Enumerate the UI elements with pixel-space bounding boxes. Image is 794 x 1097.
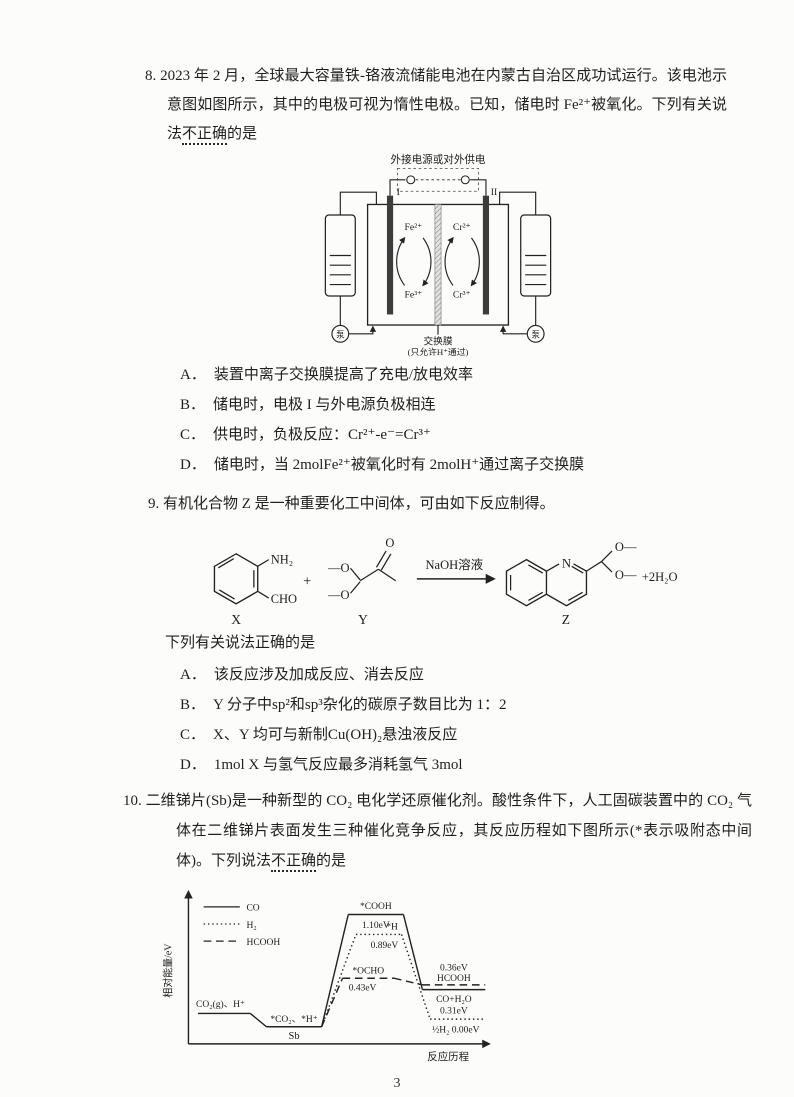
reaction-arrow: NaOH溶液: [417, 557, 494, 579]
question-10: 10. 二维锑片(Sb)是一种新型的 CO₂ 电化学还原催化剂。酸性条件下，人工…: [0, 786, 794, 1066]
cooh-intermediate-label: *COOH: [360, 902, 392, 912]
q10-stem-emphasis: 不正确: [271, 853, 316, 872]
z-nitrogen-label: N: [562, 556, 571, 570]
external-power-label: 外接电源或对外供电: [391, 153, 486, 166]
q8-options: A．装置中离子交换膜提高了充电/放电效率 B．储电时，电极 I 与外电源负极相连…: [180, 360, 794, 480]
electrode-right-label: II: [491, 187, 497, 198]
circuit-wires: [390, 168, 486, 195]
left-pump: 泵: [332, 296, 373, 342]
q9-option-c-text: X、Y 均可与新制Cu(OH)₂悬浊液反应: [213, 727, 457, 743]
molecule-x: NH₂ CHO X: [214, 552, 297, 627]
ocho-energy-label: 0.43eV: [349, 984, 377, 994]
h-intermediate-label: *H: [386, 923, 398, 933]
q10-stem-tail: 的是: [316, 853, 346, 869]
terminal-left: [407, 176, 415, 184]
y-methoxy-top: —O: [327, 561, 350, 575]
left-tank: [325, 192, 376, 296]
h2-product-label: ½H₂ 0.00eV: [432, 1024, 480, 1035]
plus-sign: +: [303, 574, 311, 590]
energy-profile-svg: 相对能量/eV 反应历程 CO H₂ HCOOH CO₂(g)、H⁺ *: [158, 880, 510, 1066]
common-path: CO₂(g)、H⁺ *CO₂、*H⁺ Sb: [196, 999, 322, 1042]
q8-option-b: B．储电时，电极 I 与外电源负极相连: [180, 390, 794, 420]
page-number: 3: [0, 1076, 794, 1092]
pump-right-label: 泵: [532, 330, 540, 339]
question-9-stem: 9. 有机化合物 Z 是一种重要化工中间体，可由如下反应制得。: [148, 490, 794, 519]
x-amine-label: NH₂: [271, 552, 293, 566]
q8-stem-emphasis: 不正确: [182, 126, 227, 145]
q9-option-c: C．X、Y 均可与新制Cu(OH)₂悬浊液反应: [180, 720, 794, 750]
q8-option-b-text: 储电时，电极 I 与外电源负极相连: [213, 397, 436, 413]
y-methoxy-bottom: —O: [327, 588, 350, 602]
start-state-label: CO₂(g)、H⁺: [196, 999, 245, 1010]
label-z: Z: [562, 612, 570, 627]
q8-option-c-label: C．: [180, 427, 205, 443]
q8-option-c: C．供电时，负极反应：Cr²⁺-e⁻=Cr³⁺: [180, 420, 794, 450]
reaction-scheme: NH₂ CHO X + —O —O O Y: [188, 521, 794, 629]
q9-option-d-label: D．: [180, 757, 206, 773]
q8-option-a-text: 装置中离子交换膜提高了充电/放电效率: [214, 367, 473, 383]
h-energy-label: 0.89eV: [371, 941, 399, 951]
right-compartment-ions: Cr²⁺ Cr³⁺: [445, 222, 479, 301]
question-10-stem: 10. 二维锑片(Sb)是一种新型的 CO₂ 电化学还原催化剂。酸性条件下，人工…: [123, 786, 752, 876]
q9-option-c-label: C．: [180, 727, 205, 743]
molecule-y: —O —O O Y: [327, 536, 396, 627]
q9-option-a-text: 该反应涉及加成反应、消去反应: [214, 667, 424, 683]
x-aldehyde-label: CHO: [271, 592, 297, 606]
cr3-ion-label: Cr³⁺: [453, 290, 471, 301]
hcooh-product-label: HCOOH: [437, 974, 471, 984]
question-8: 8. 2023 年 2 月，全球最大容量铁-铬液流储能电池在内蒙古自治区成功试运…: [0, 62, 794, 480]
q9-option-b-label: B．: [180, 697, 205, 713]
water-byproduct: +2H₂O: [642, 570, 678, 584]
right-tank: [500, 192, 551, 296]
reaction-scheme-svg: NH₂ CHO X + —O —O O Y: [188, 521, 688, 629]
legend: CO H₂ HCOOH: [204, 904, 281, 948]
battery-diagram-svg: 外接电源或对外供电 I II Fe²⁺ Fe³⁺: [306, 153, 570, 358]
membrane-label: 交换膜: [423, 334, 452, 347]
question-9: 9. 有机化合物 Z 是一种重要化工中间体，可由如下反应制得。 NH₂ CH: [0, 490, 794, 780]
q8-option-a-label: A．: [180, 367, 206, 383]
molecule-z: N O— O— +2H₂O Z: [506, 540, 677, 627]
q9-option-d: D．1mol X 与氢气反应最多消耗氢气 3mol: [180, 750, 794, 780]
energy-profile-diagram: 相对能量/eV 反应历程 CO H₂ HCOOH CO₂(g)、H⁺ *: [158, 880, 794, 1066]
z-methoxy-bottom: O—: [615, 568, 637, 582]
exam-page: 8. 2023 年 2 月，全球最大容量铁-铬液流储能电池在内蒙古自治区成功试运…: [0, 0, 794, 1097]
q8-option-a: A．装置中离子交换膜提高了充电/放电效率: [180, 360, 794, 390]
x-axis-label: 反应历程: [427, 1050, 469, 1063]
right-pump: 泵: [503, 296, 544, 342]
electrode-left-bar: [387, 196, 393, 315]
co-product-label: CO+H₂O: [436, 995, 472, 1005]
legend-co: CO: [246, 904, 259, 914]
question-9-lead: 下列有关说法正确的是: [165, 629, 794, 658]
electrode-right-bar: [483, 196, 489, 315]
label-y: Y: [358, 612, 368, 627]
ocho-intermediate-label: *OCHO: [352, 966, 384, 976]
battery-diagram: 外接电源或对外供电 I II Fe²⁺ Fe³⁺: [306, 153, 794, 358]
electrode-left-label: I: [397, 187, 400, 198]
q8-option-d-text: 储电时，当 2molFe²⁺被氧化时有 2molH⁺通过离子交换膜: [214, 457, 584, 473]
q8-option-c-text: 供电时，负极反应：Cr²⁺-e⁻=Cr³⁺: [213, 427, 431, 443]
cr2-ion-label: Cr²⁺: [453, 222, 471, 233]
q8-option-b-label: B．: [180, 397, 205, 413]
terminal-right: [461, 176, 469, 184]
left-compartment-ions: Fe²⁺ Fe³⁺: [397, 222, 431, 301]
label-x: X: [231, 612, 241, 627]
y-carbonyl-o: O: [385, 536, 394, 550]
q8-option-d: D．储电时，当 2molFe²⁺被氧化时有 2molH⁺通过离子交换膜: [180, 450, 794, 480]
adsorbed-state-label: *CO₂、*H⁺: [270, 1015, 317, 1025]
catalyst-label: Sb: [289, 1031, 300, 1042]
legend-h2: H₂: [246, 921, 256, 931]
hcooh-product-energy: 0.36eV: [440, 964, 468, 974]
co-product-energy: 0.31eV: [440, 1006, 468, 1016]
membrane-note: (只允许H⁺通过): [408, 346, 469, 357]
question-8-stem: 8. 2023 年 2 月，全球最大容量铁-铬液流储能电池在内蒙古自治区成功试运…: [145, 62, 727, 149]
q9-option-b-text: Y 分子中sp²和sp³杂化的碳原子数目比为 1：2: [213, 697, 506, 713]
q9-options: A．该反应涉及加成反应、消去反应 B．Y 分子中sp²和sp³杂化的碳原子数目比…: [180, 660, 794, 780]
pump-left-label: 泵: [336, 330, 344, 339]
q9-option-d-text: 1mol X 与氢气反应最多消耗氢气 3mol: [214, 757, 463, 773]
fe2-ion-label: Fe²⁺: [405, 222, 423, 233]
z-methoxy-top: O—: [615, 540, 637, 554]
fe3-ion-label: Fe³⁺: [405, 290, 423, 301]
q8-stem-tail: 的是: [227, 126, 257, 142]
q9-option-a-label: A．: [180, 667, 206, 683]
q9-option-b: B．Y 分子中sp²和sp³杂化的碳原子数目比为 1：2: [180, 690, 794, 720]
legend-hcooh: HCOOH: [246, 938, 280, 948]
q10-stem-text: 10. 二维锑片(Sb)是一种新型的 CO₂ 电化学还原催化剂。酸性条件下，人工…: [123, 793, 752, 869]
ion-exchange-membrane: [435, 204, 441, 325]
y-axis-label: 相对能量/eV: [161, 943, 174, 998]
q8-option-d-label: D．: [180, 457, 206, 473]
q9-option-a: A．该反应涉及加成反应、消去反应: [180, 660, 794, 690]
reagent-label: NaOH溶液: [426, 557, 484, 572]
